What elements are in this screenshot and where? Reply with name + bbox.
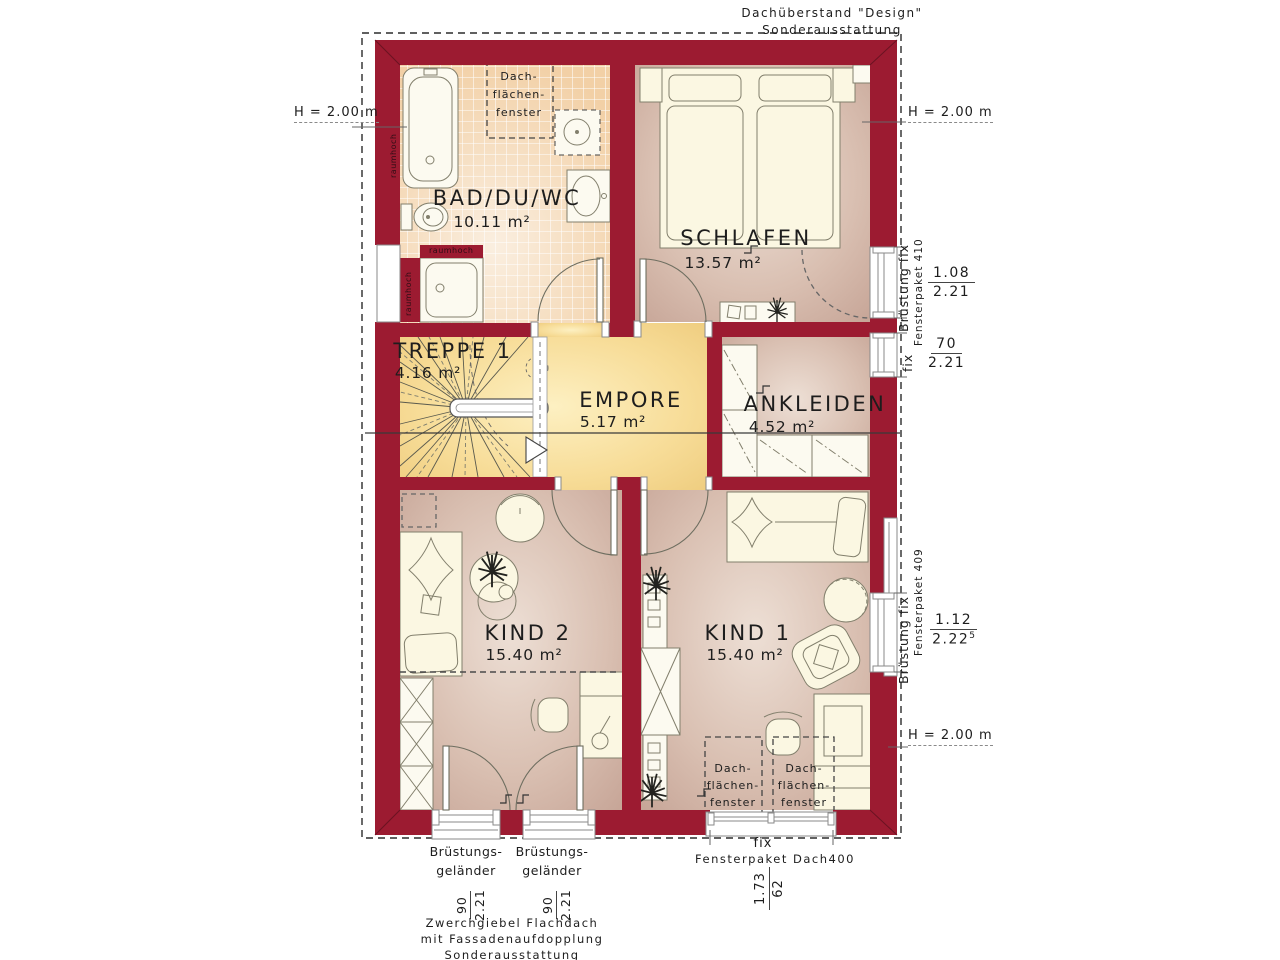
window409-type-label: Brüstung fix <box>896 596 911 684</box>
room-name-schlafen: SCHLAFEN <box>680 226 811 250</box>
window410-product-label: Fensterpaket 410 <box>913 238 925 346</box>
room-name-kind1: KIND 1 <box>705 621 792 645</box>
balcony-rail-left-l2: geländer <box>430 861 503 880</box>
height-label-right-bottom: H = 2.00 m <box>908 728 993 743</box>
footer-note-line1: Zwerchgiebel Flachdach <box>421 915 604 931</box>
roof-window-label-kind1a-l3: fenster <box>707 794 759 811</box>
window-fix70-type-label: fix <box>900 354 915 372</box>
window-fix70-height: 2.21 <box>928 354 965 371</box>
balcony-rail-label-right: Brüstungs- geländer <box>516 842 589 880</box>
room-area-schlafen: 13.57 m² <box>684 254 761 272</box>
room-area-bad: 10.11 m² <box>453 213 530 231</box>
roof-window-label-kind1b-l1: Dach- <box>778 760 830 777</box>
window-dach400-height: 62 <box>770 879 786 898</box>
window-dach400-dimension: 1.73 62 <box>749 867 786 910</box>
roof-window-label-bad-l1: Dach- <box>493 68 545 86</box>
window409-height-sup: 5 <box>969 631 975 641</box>
room-name-kind2: KIND 2 <box>485 621 572 645</box>
wardrobe-kind1 <box>641 648 680 735</box>
window410-dimension: 1.08 2.21 <box>928 265 975 300</box>
height-label-right-top-text: H = 2.00 m <box>908 105 993 123</box>
french-window-kind2-right <box>523 815 595 839</box>
shower <box>420 258 483 322</box>
sideboard <box>720 302 795 323</box>
room-area-kind1: 15.40 m² <box>706 646 783 664</box>
room-area-empore: 5.17 m² <box>580 413 646 431</box>
balcony-rail-label-left: Brüstungs- geländer <box>430 842 503 880</box>
height-label-right-top: H = 2.00 m <box>908 105 993 120</box>
round-table-kind1 <box>824 578 868 622</box>
window409-height-value: 2.22 <box>932 632 969 648</box>
window-bad-raumhoch <box>377 245 400 322</box>
window-dach400-type-label: fix <box>754 836 773 851</box>
armchair-kind2 <box>496 494 544 542</box>
balcony-rail-right-l1: Brüstungs- <box>516 842 589 861</box>
room-area-ankleiden: 4.52 m² <box>749 418 815 436</box>
window410-height: 2.21 <box>933 283 970 300</box>
wardrobe-kind2 <box>400 678 433 810</box>
window-schlafen <box>870 247 897 318</box>
ceiling-spot <box>555 110 600 155</box>
balcony-rail-left-l1: Brüstungs- <box>430 842 503 861</box>
roof-overhang-note-line1: Dachüberstand "Design" <box>741 5 922 22</box>
floor-plan-drawing <box>0 0 1280 960</box>
french-window-kind2-left <box>432 815 500 839</box>
wall-niche <box>853 65 871 83</box>
roof-window-label-kind1b: Dach- flächen- fenster <box>778 760 830 811</box>
window409-dimension: 1.12 2.225 <box>930 612 977 648</box>
balcony-rail-right-l2: geländer <box>516 861 589 880</box>
window-kind1-bottom <box>706 812 836 836</box>
room-area-treppe: 4.16 m² <box>395 364 461 382</box>
window409-height: 2.225 <box>932 630 975 648</box>
room-area-kind2: 15.40 m² <box>485 646 562 664</box>
roof-window-label-kind1a: Dach- flächen- fenster <box>707 760 759 811</box>
bathtub <box>403 68 458 188</box>
roof-window-label-kind1b-l3: fenster <box>778 794 830 811</box>
window-ankleiden <box>870 333 897 377</box>
roof-window-label-kind1b-l2: flächen- <box>778 777 830 794</box>
raumhoch-label-bathtub: raumhoch <box>389 134 398 179</box>
double-bed <box>660 68 840 248</box>
bed-kind1 <box>727 492 868 562</box>
room-name-ankleiden: ANKLEIDEN <box>744 392 887 416</box>
roof-window-label-bad-l3: fenster <box>493 104 545 122</box>
height-label-left: H = 2.00 m <box>294 105 379 120</box>
raumhoch-label-shower-top: raumhoch <box>429 246 474 255</box>
room-name-empore: EMPORE <box>579 388 682 412</box>
roof-window-label-bad: Dach- flächen- fenster <box>493 68 545 122</box>
roof-window-label-bad-l2: flächen- <box>493 86 545 104</box>
roof-overhang-note-line2: Sonderausstattung <box>741 22 922 39</box>
window410-type-label: Brüstung fix <box>896 244 911 332</box>
roof-window-label-kind1a-l2: flächen- <box>707 777 759 794</box>
window409-width: 1.12 <box>930 612 977 630</box>
desk-kind2 <box>580 672 625 758</box>
height-label-right-bottom-text: H = 2.00 m <box>908 728 993 746</box>
bed-kind2 <box>400 532 462 676</box>
footer-note-line3: Sonderausstattung <box>421 947 604 960</box>
raumhoch-label-shower-side: raumhoch <box>404 272 413 317</box>
window-fix70-width: 70 <box>931 336 962 354</box>
roof-window-label-kind1a-l1: Dach- <box>707 760 759 777</box>
window-fix70-dimension: 70 2.21 <box>928 336 965 371</box>
window410-width: 1.08 <box>928 265 975 283</box>
roof-overhang-note: Dachüberstand "Design" Sonderausstattung <box>741 5 922 39</box>
footer-note: Zwerchgiebel Flachdach mit Fassadenaufdo… <box>421 915 604 960</box>
floor-plan-sheet: Dachüberstand "Design" Sonderausstattung… <box>0 0 1280 960</box>
footer-note-line2: mit Fassadenaufdopplung <box>421 931 604 947</box>
window-dach400-width: 1.73 <box>753 867 770 910</box>
nightstand-left <box>640 68 662 102</box>
height-label-left-text: H = 2.00 m <box>294 105 379 123</box>
room-name-treppe: TREPPE 1 <box>393 339 512 363</box>
window-dach400-product-label: Fensterpaket Dach400 <box>695 852 855 866</box>
nightstand-right <box>833 68 855 102</box>
window409-product-label: Fensterpaket 409 <box>913 548 925 656</box>
room-name-bad: BAD/DU/WC <box>433 186 582 210</box>
